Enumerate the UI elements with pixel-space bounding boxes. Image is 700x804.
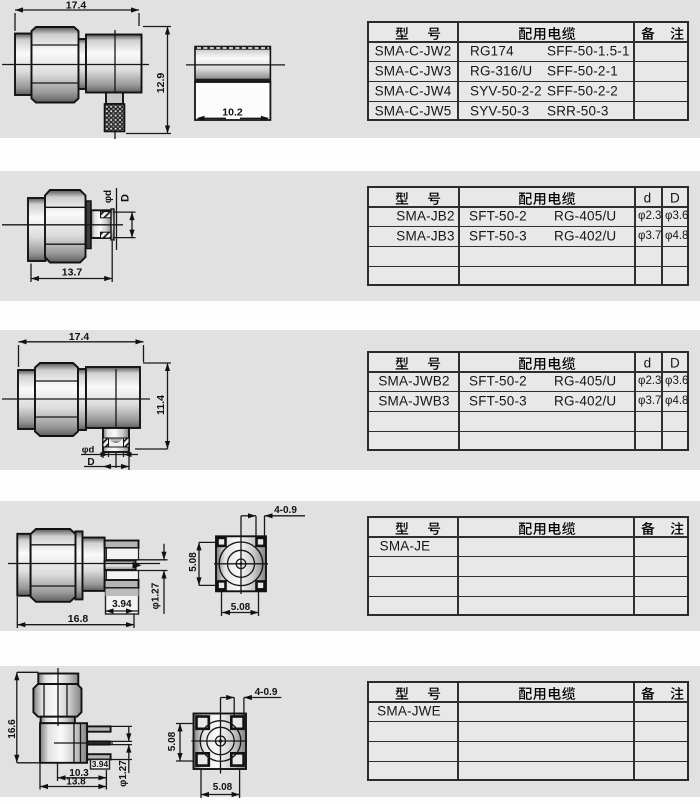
svg-text:D: D <box>120 194 132 202</box>
svg-text:5.08: 5.08 <box>213 782 233 793</box>
svg-text:3.94: 3.94 <box>112 599 132 610</box>
svg-text:17.4: 17.4 <box>69 331 90 343</box>
svg-text:4-0.9: 4-0.9 <box>255 687 278 698</box>
svg-text:12.9: 12.9 <box>155 73 167 94</box>
svg-text:φd: φd <box>103 190 114 203</box>
svg-text:16.8: 16.8 <box>68 613 89 625</box>
svg-text:φ1.27: φ1.27 <box>151 582 162 609</box>
svg-text:φ1.27: φ1.27 <box>118 760 129 787</box>
svg-text:10.2: 10.2 <box>222 106 243 118</box>
svg-text:13.8: 13.8 <box>66 777 86 788</box>
svg-text:11.4: 11.4 <box>155 395 167 415</box>
svg-text:3.94: 3.94 <box>92 759 109 769</box>
svg-text:16.6: 16.6 <box>7 719 18 739</box>
svg-text:5.08: 5.08 <box>231 602 251 613</box>
svg-text:17.4: 17.4 <box>66 0 87 11</box>
svg-text:13.7: 13.7 <box>62 266 83 278</box>
svg-text:5.08: 5.08 <box>188 552 199 572</box>
svg-text:4-0.9: 4-0.9 <box>274 505 297 516</box>
svg-text:5.08: 5.08 <box>167 731 178 751</box>
